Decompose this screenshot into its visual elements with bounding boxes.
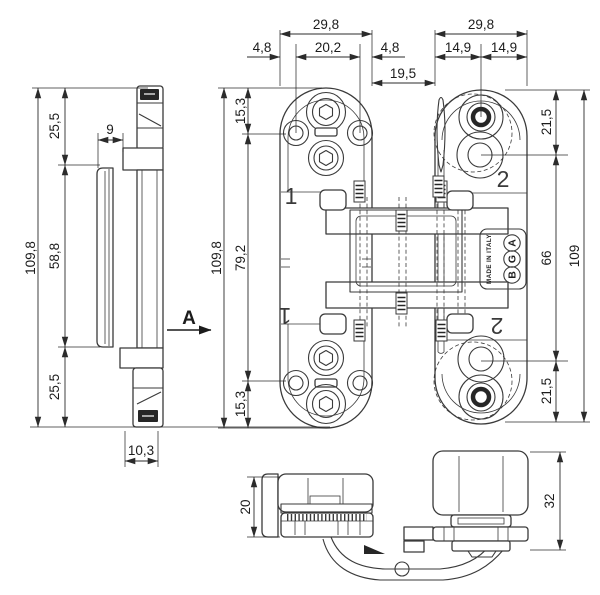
dim-hole-spacing: 20,2 <box>315 40 341 55</box>
dim-frame-cap-bottom: 15,3 <box>233 391 248 417</box>
part-label-1-top: 1 <box>285 183 298 209</box>
logo-letter-b: B <box>507 271 519 279</box>
dim-gap: 19,5 <box>390 66 416 81</box>
dim-door-half-left: 14,9 <box>445 40 471 55</box>
dim-side-overall: 109,8 <box>23 241 38 275</box>
dim-side-thickness: 10,3 <box>128 443 154 458</box>
dim-side-middle: 58,8 <box>47 243 62 269</box>
dim-frame-width: 29,8 <box>313 17 339 32</box>
dim-bottom-frame-height: 20 <box>238 499 253 514</box>
logo-letter-g: G <box>507 255 519 263</box>
bottom-view <box>262 451 528 580</box>
dim-side-offset: 9 <box>106 122 114 137</box>
dim-frame-cap-top: 15,3 <box>233 98 248 124</box>
part-label-2-top: 2 <box>497 166 510 192</box>
dim-door-height: 109 <box>567 245 582 268</box>
drawing-canvas: A G B MADE IN ITALY 1 1 2 2 <box>0 0 600 590</box>
side-view <box>97 86 163 427</box>
part-label-2-bottom: 2 <box>491 313 504 339</box>
dim-door-top-hole: 21,5 <box>539 109 554 135</box>
dim-door-width: 29,8 <box>468 17 494 32</box>
dim-side-top: 25,5 <box>47 113 62 139</box>
dim-frame-height: 109,8 <box>209 241 224 275</box>
adjustment-gauge <box>354 181 365 202</box>
hinge-technical-drawing: A G B MADE IN ITALY 1 1 2 2 <box>0 0 600 590</box>
dim-door-half-right: 14,9 <box>491 40 517 55</box>
logo-letter-a: A <box>507 239 519 247</box>
frame-part-view <box>280 88 372 428</box>
dim-edge-right: 4,8 <box>381 40 400 55</box>
dim-side-bottom: 25,5 <box>47 374 62 400</box>
dim-door-bottom-hole: 21,5 <box>539 378 554 404</box>
section-label-a: A <box>182 308 196 329</box>
dim-edge-left: 4,8 <box>253 40 272 55</box>
dim-frame-hole-span: 79,2 <box>233 245 248 271</box>
made-in-italy-label: MADE IN ITALY <box>486 234 493 284</box>
dim-bottom-door-height: 32 <box>542 493 557 508</box>
dim-door-hole-span: 66 <box>539 250 554 265</box>
part-label-1-bottom: 1 <box>279 303 292 329</box>
